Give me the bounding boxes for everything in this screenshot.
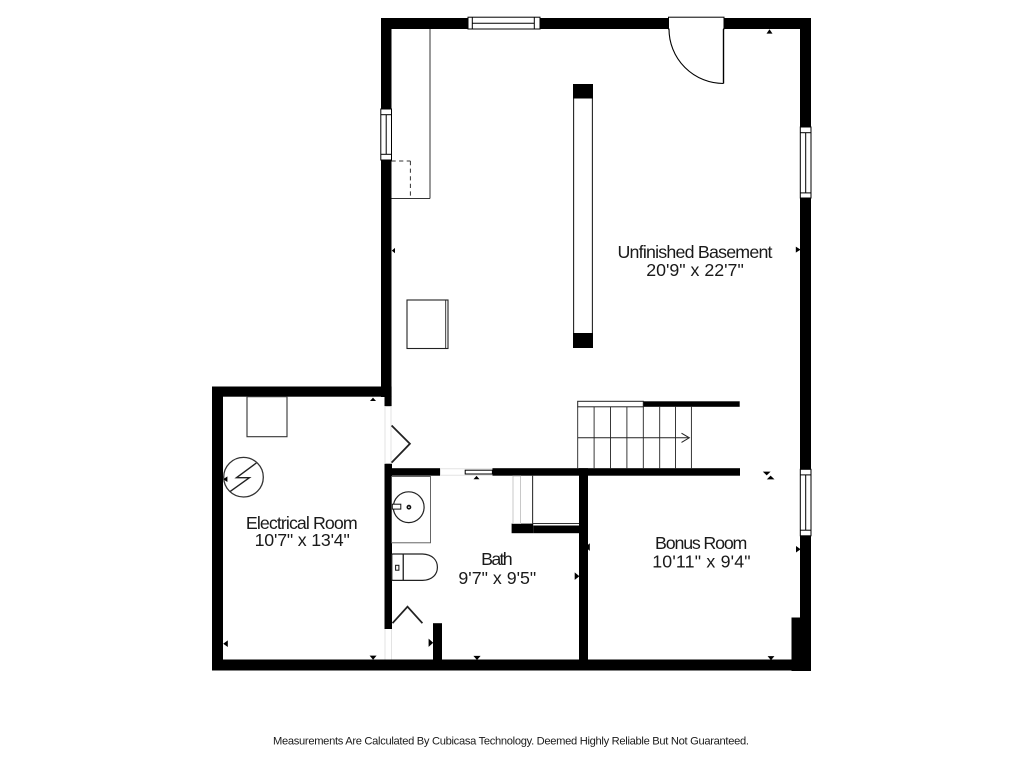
svg-text:Bath: Bath [481,549,513,569]
svg-text:10'7" x 13'4": 10'7" x 13'4" [255,530,350,550]
svg-text:20'9" x 22'7": 20'9" x 22'7" [646,260,744,280]
svg-text:10'11" x 9'4": 10'11" x 9'4" [652,552,750,572]
svg-text:9'7" x 9'5": 9'7" x 9'5" [458,568,536,588]
svg-text:Bonus Room: Bonus Room [655,533,747,553]
svg-text:Measurements Are Calculated By: Measurements Are Calculated By Cubicasa … [273,736,749,748]
